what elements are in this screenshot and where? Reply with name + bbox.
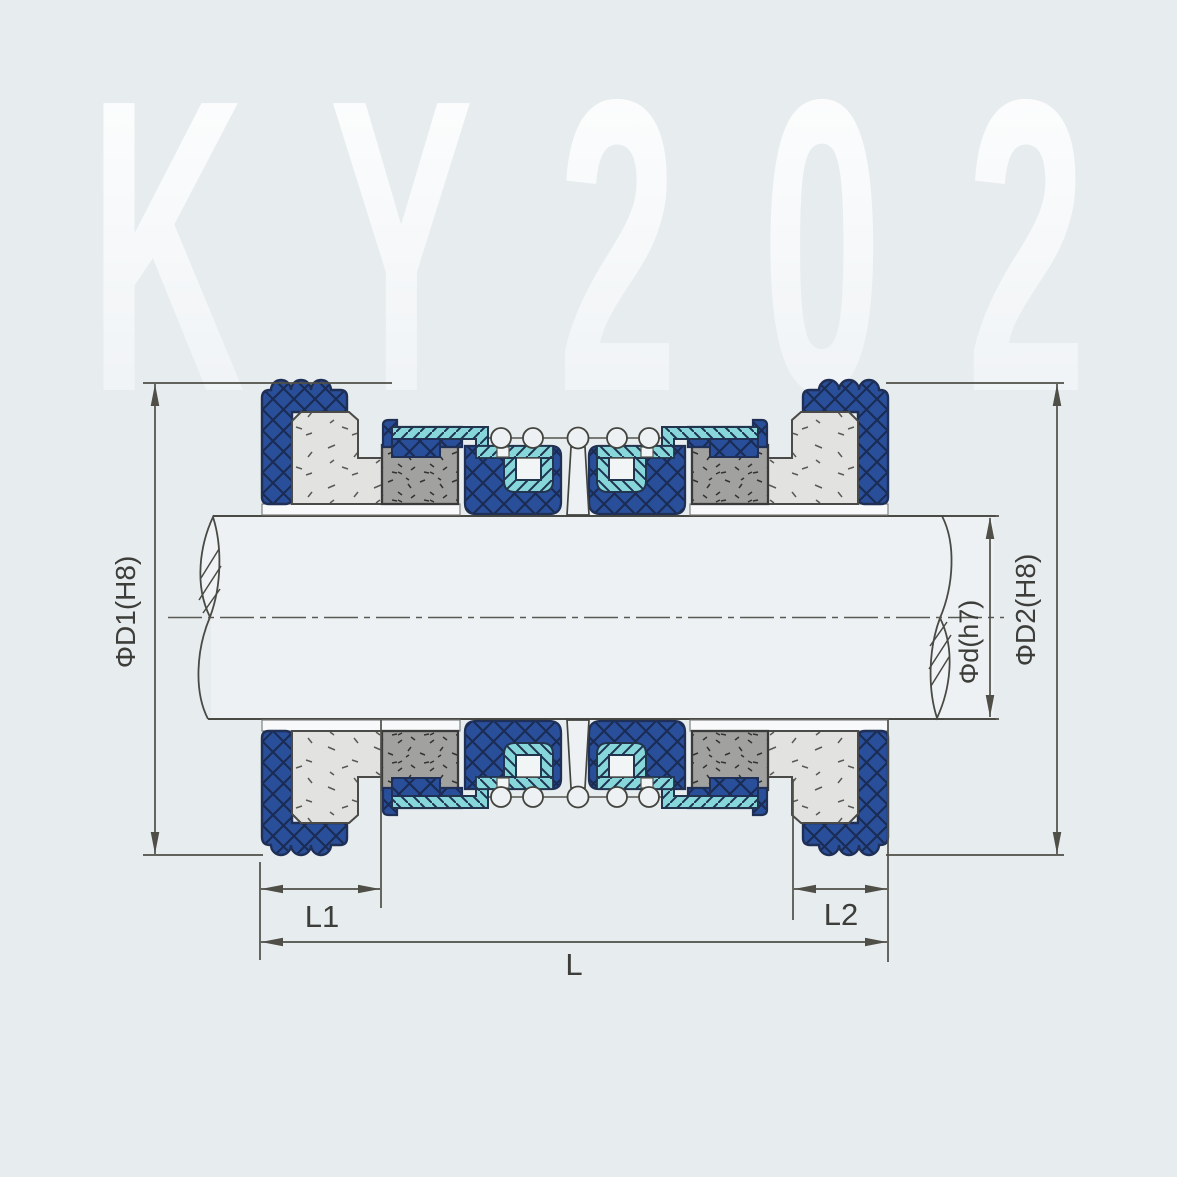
retainer-ledge (476, 446, 553, 458)
clearance-strip (262, 504, 460, 515)
label-l2: L2 (824, 897, 858, 932)
label-l: L (565, 947, 582, 982)
page-background: KY202 (0, 0, 1177, 1177)
label-d2: ΦD2(H8) (1010, 554, 1041, 667)
spring-stem (567, 447, 589, 515)
spring-center-lower (567, 720, 589, 808)
spring-center-upper (567, 428, 589, 516)
spring-coil (491, 428, 511, 448)
spring-coil (568, 787, 589, 808)
bellows-fold (392, 439, 440, 457)
seal-technical-drawing: KY202 (0, 0, 1177, 1177)
watermark-text: KY202 (89, 13, 1171, 479)
spring-stem (567, 720, 589, 788)
label-l1: L1 (305, 899, 339, 934)
spring-coil (523, 428, 543, 448)
channel-pocket (516, 458, 541, 480)
label-d: Φd(h7) (954, 600, 984, 685)
shaft (168, 516, 1004, 719)
spring-coil (568, 428, 589, 449)
label-d1: ΦD1(H8) (110, 556, 141, 669)
